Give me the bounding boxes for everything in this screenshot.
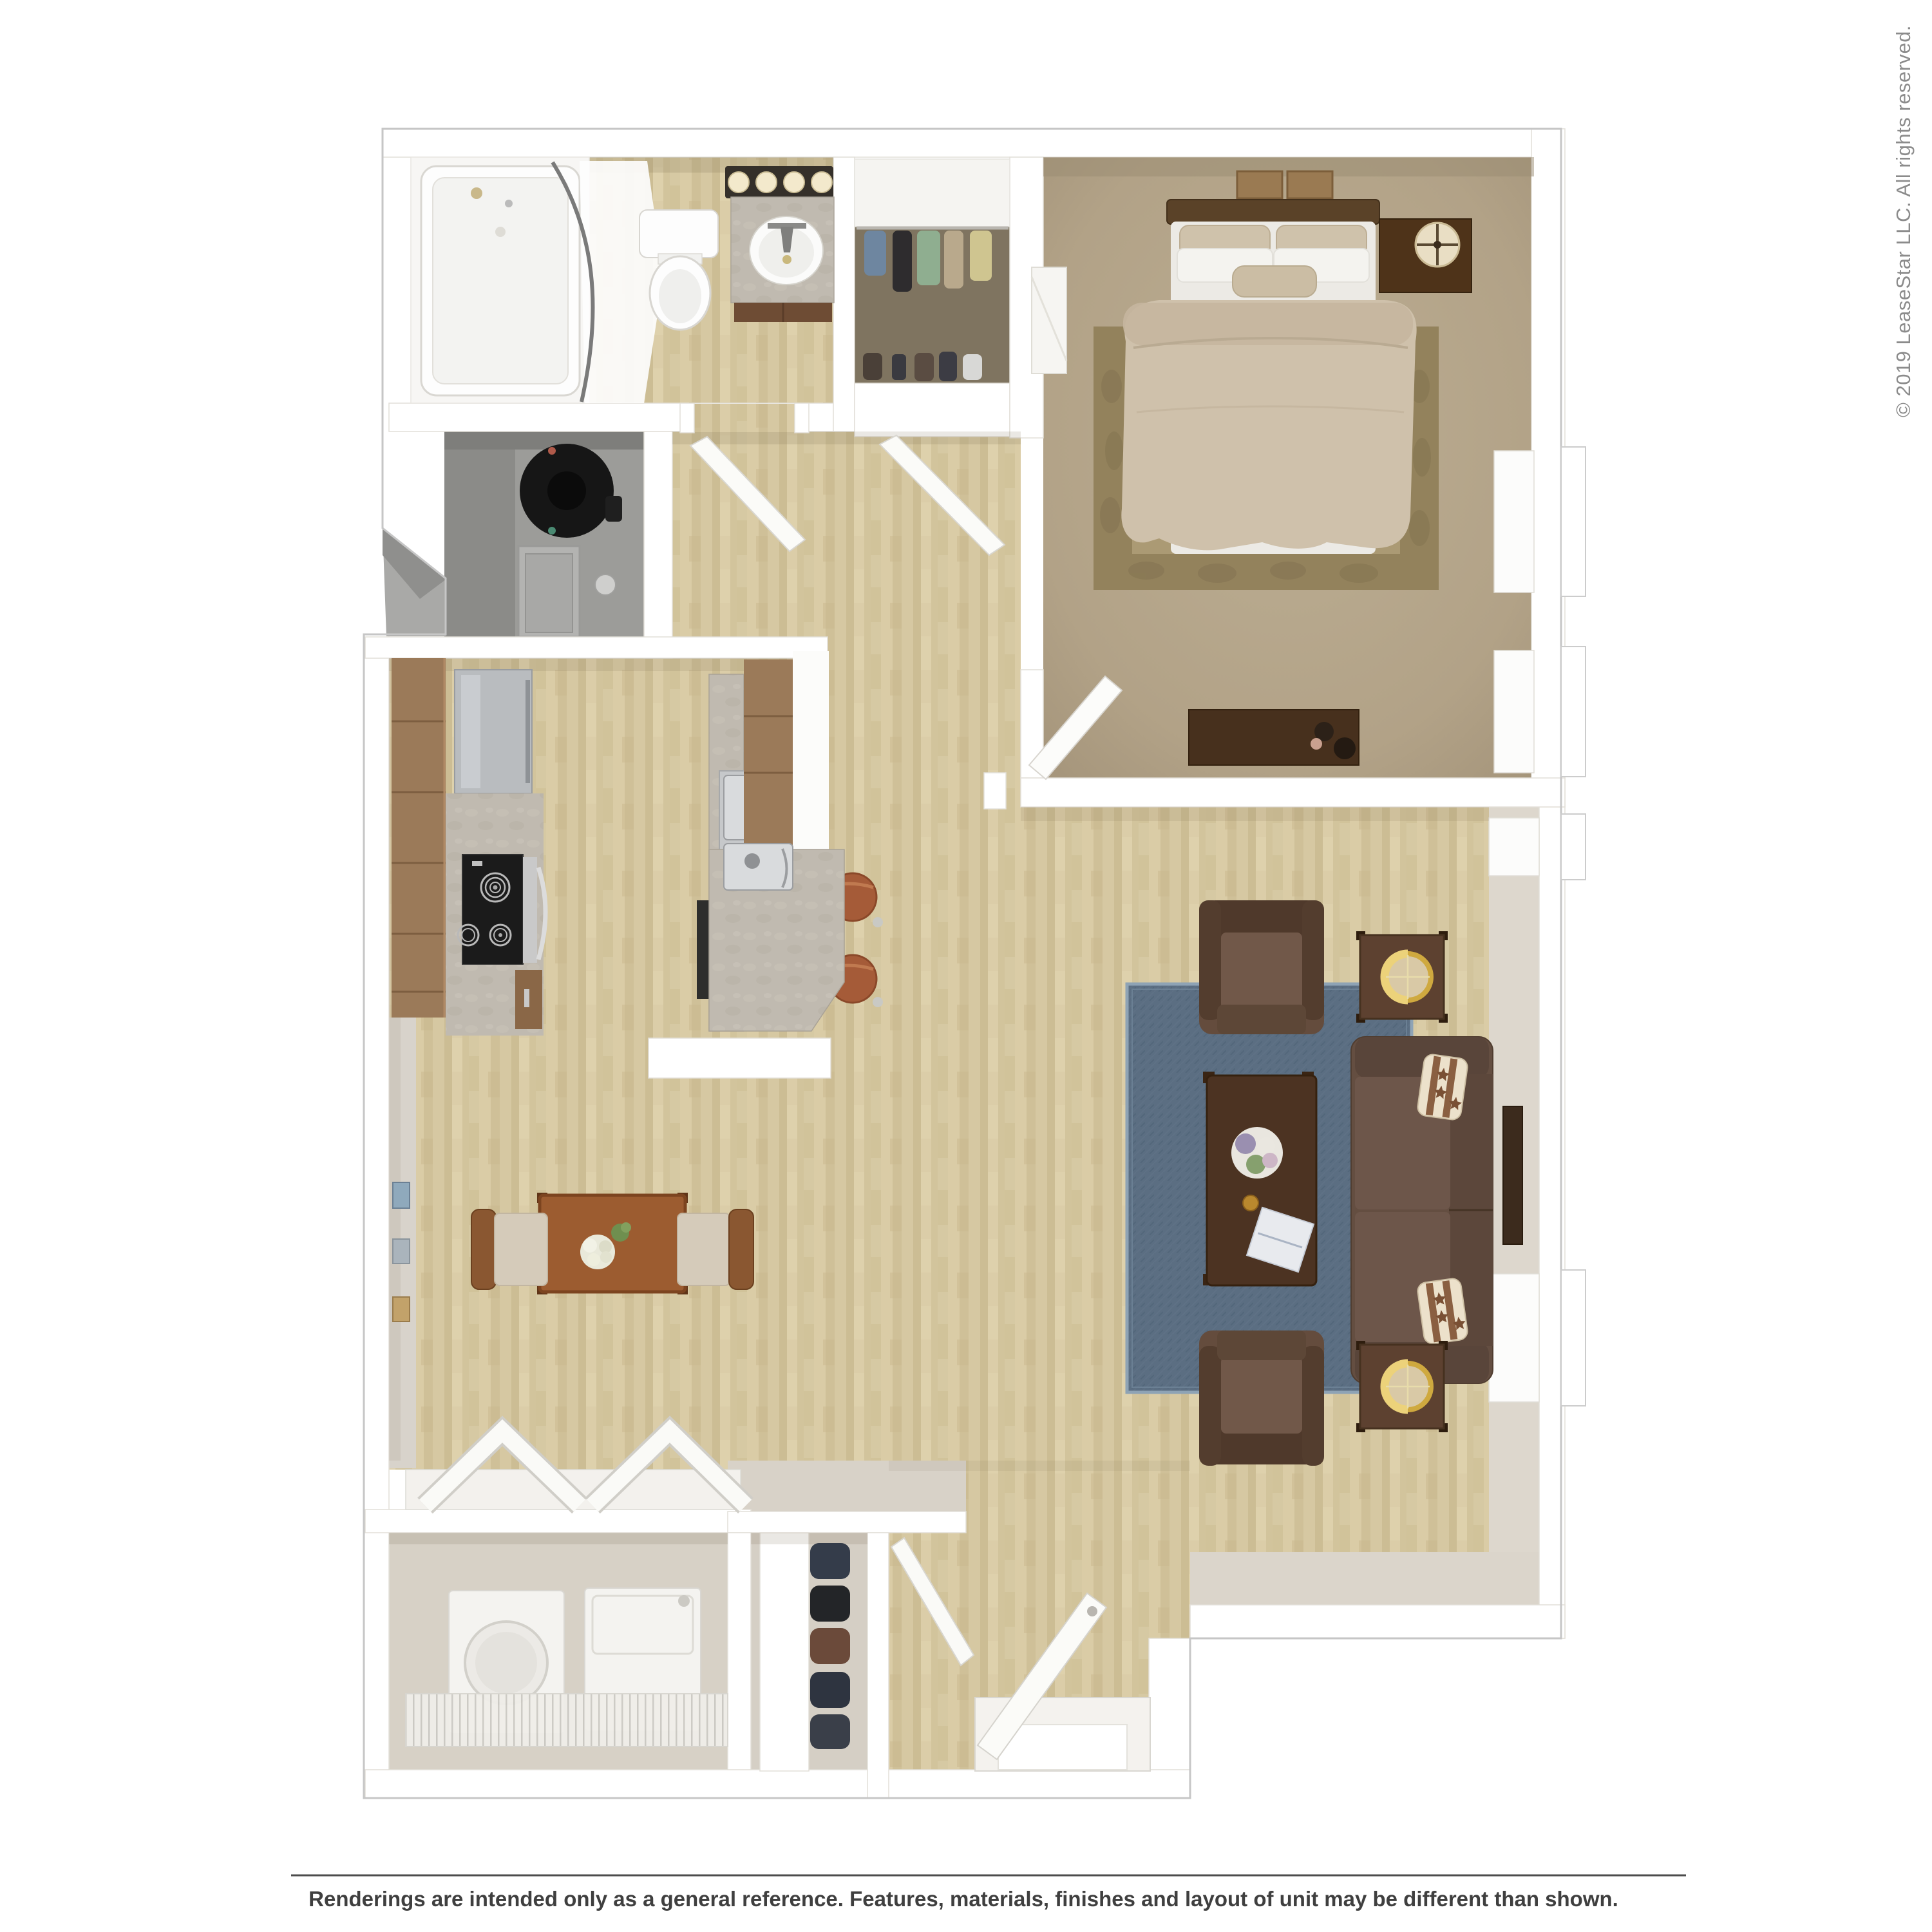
svg-text:© 2019 LeaseStar LLC. All righ: © 2019 LeaseStar LLC. All rights reserve…: [1892, 25, 1915, 417]
svg-text:Renderings are intended only a: Renderings are intended only as a genera…: [308, 1887, 1618, 1911]
